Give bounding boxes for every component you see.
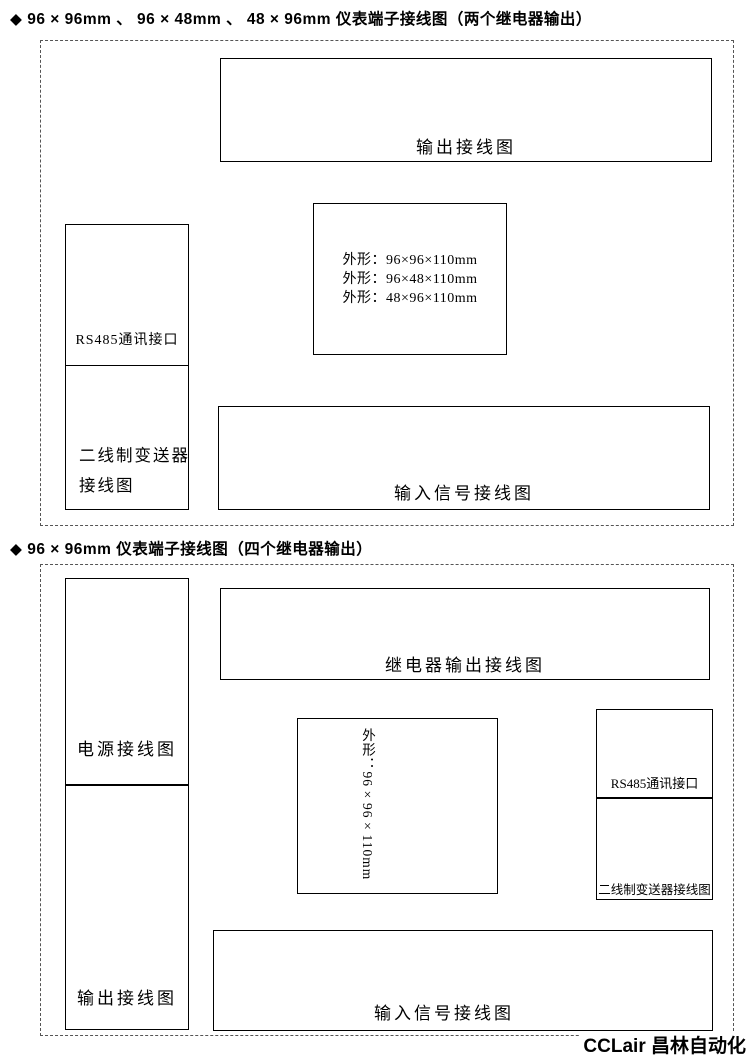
s2-rs485-label: RS485通讯接口 (597, 773, 712, 792)
s1-dims-1: 外形：96×96×110mm (314, 249, 506, 269)
s2-output-box: 输出接线图 (65, 785, 189, 1030)
s1-dims-3: 外形：48×96×110mm (314, 287, 506, 307)
s2-input-label: 输入信号接线图 (304, 999, 584, 1024)
page-canvas: ◆ 96 × 96mm 、 96 × 48mm 、 48 × 96mm 仪表端子… (0, 0, 750, 1064)
s1-rs485-box: RS485通讯接口 (65, 224, 189, 366)
s1-input-label: 输入信号接线图 (219, 479, 709, 504)
s1-dims-2: 外形：96×48×110mm (314, 268, 506, 288)
watermark: CCLair 昌林自动化 (579, 1031, 746, 1058)
s2-transmitter-box: 二线制变送器接线图 (596, 798, 713, 900)
s2-transmitter-label: 二线制变送器接线图 (597, 879, 712, 898)
s2-relay-label: 继电器输出接线图 (221, 651, 709, 676)
s1-transmitter-label-line1: 二线制变送器 (79, 442, 190, 466)
s2-rs485-box: RS485通讯接口 (596, 709, 713, 798)
section1-title: ◆ 96 × 96mm 、 96 × 48mm 、 48 × 96mm 仪表端子… (10, 7, 592, 29)
s2-power-label: 电源接线图 (66, 735, 188, 760)
section2-title: ◆ 96 × 96mm 仪表端子接线图（四个继电器输出） (10, 537, 372, 559)
s1-transmitter-box: 二线制变送器 接线图 (65, 365, 189, 510)
s1-terminal-overview-box: 外形：96×96×110mm 外形：96×48×110mm 外形：48×96×1… (313, 203, 507, 355)
s2-power-box: 电源接线图 (65, 578, 189, 785)
s1-input-box: 输入信号接线图 (218, 406, 710, 510)
s1-rs485-label: RS485通讯接口 (66, 329, 188, 349)
s1-output-box: 输出接线图 (220, 58, 712, 162)
s2-input-box: 输入信号接线图 (213, 930, 713, 1031)
s2-relay-box: 继电器输出接线图 (220, 588, 710, 680)
s1-output-label: 输出接线图 (221, 133, 711, 158)
s2-output-label: 输出接线图 (66, 984, 188, 1009)
s1-transmitter-label-line2: 接线图 (79, 472, 135, 496)
s2-terminal-overview-box: 外形：96×96×110mm (297, 718, 498, 894)
s2-dims: 外形：96×96×110mm (357, 728, 377, 888)
